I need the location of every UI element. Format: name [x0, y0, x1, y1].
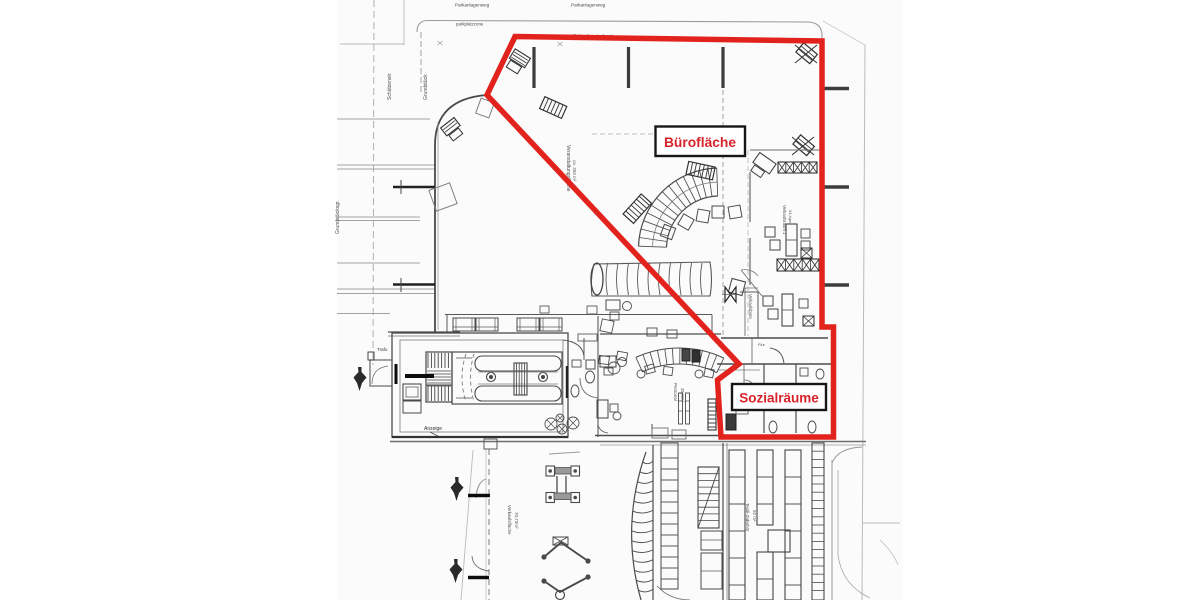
- svg-text:Verkaufsraum 1: Verkaufsraum 1: [782, 205, 787, 235]
- svg-text:92 m²: 92 m²: [752, 510, 757, 522]
- svg-text:70,73m²: 70,73m²: [514, 512, 519, 529]
- svg-text:Schützenstr.: Schützenstr.: [387, 72, 393, 100]
- svg-text:ca. 393 m²: ca. 393 m²: [572, 160, 577, 182]
- svg-text:Grundstück: Grundstück: [423, 74, 429, 100]
- svg-text:parkplatzzone: parkplatzzone: [456, 22, 484, 27]
- svg-text:Personal: Personal: [673, 383, 678, 401]
- svg-text:Bürofläche: Bürofläche: [664, 135, 736, 150]
- svg-text:Verkaufsbüro: Verkaufsbüro: [748, 294, 753, 319]
- svg-text:94,4qm: 94,4qm: [788, 210, 793, 224]
- svg-text:Trafo: Trafo: [377, 347, 388, 352]
- svg-text:Grundstücksgr.: Grundstücksgr.: [335, 200, 341, 234]
- svg-text:Parkanlagenweg: Parkanlagenweg: [571, 3, 606, 8]
- svg-text:Flur: Flur: [758, 342, 766, 347]
- svg-text:Anzeige: Anzeige: [424, 426, 442, 432]
- svg-text:Sozialräume: Sozialräume: [739, 391, 819, 406]
- svg-text:Textil-Zubehör: Textil-Zubehör: [745, 503, 750, 532]
- svg-text:35,8m²: 35,8m²: [680, 388, 685, 403]
- svg-text:Parkanlagenweg: Parkanlagenweg: [455, 3, 490, 8]
- svg-text:Verkaufsfläche: Verkaufsfläche: [507, 505, 512, 535]
